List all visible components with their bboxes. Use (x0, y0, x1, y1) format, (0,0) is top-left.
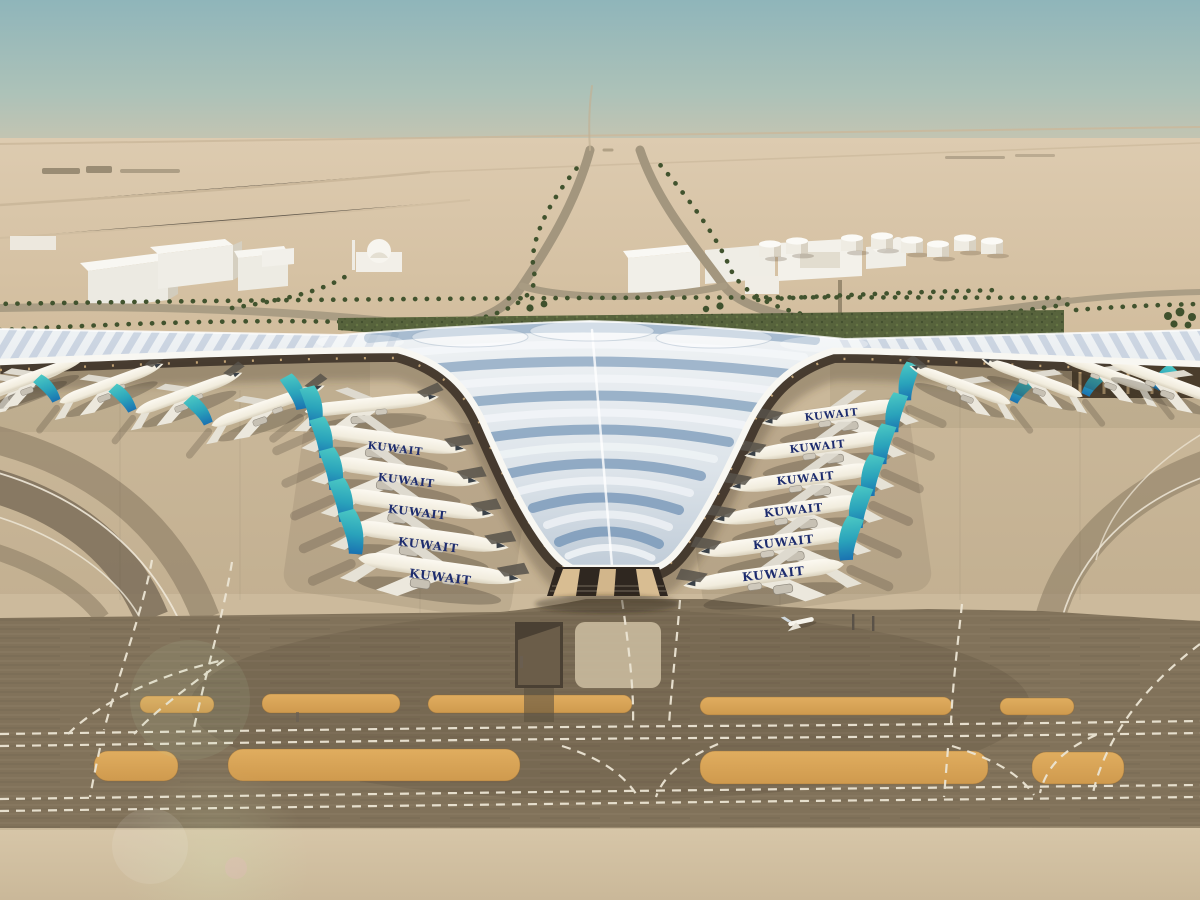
airport-rendering: KUWAIT KUWAIT KUWAIT KUWAIT KUWAIT KUWAI… (0, 0, 1200, 900)
terminal-tip-facade (535, 567, 679, 613)
scene-canvas: KUWAIT KUWAIT KUWAIT KUWAIT KUWAIT KUWAI… (0, 0, 1200, 900)
mast (852, 614, 854, 630)
mast (520, 656, 523, 668)
mast (296, 712, 299, 722)
mast (872, 616, 874, 631)
